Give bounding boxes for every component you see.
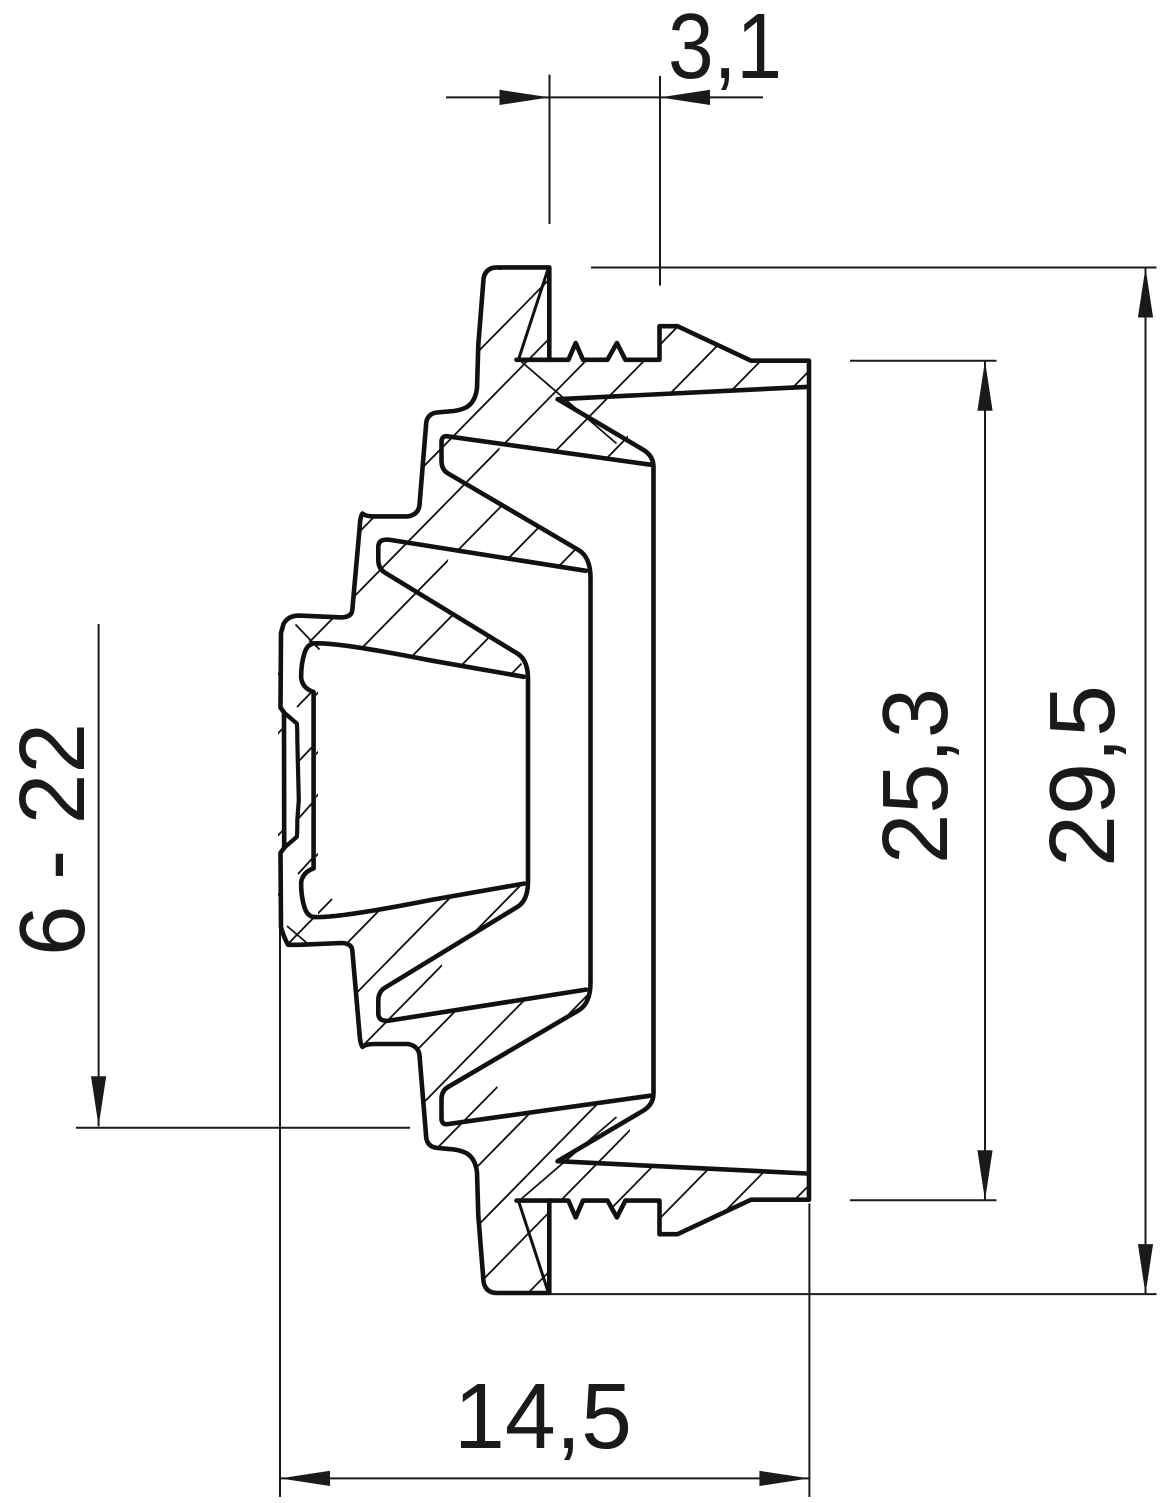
svg-text:14,5: 14,5 (454, 1364, 632, 1468)
svg-text:3,1: 3,1 (668, 0, 782, 98)
svg-text:25,3: 25,3 (863, 688, 967, 864)
svg-text:6 - 22: 6 - 22 (0, 723, 104, 956)
svg-text:29,5: 29,5 (1030, 685, 1134, 867)
